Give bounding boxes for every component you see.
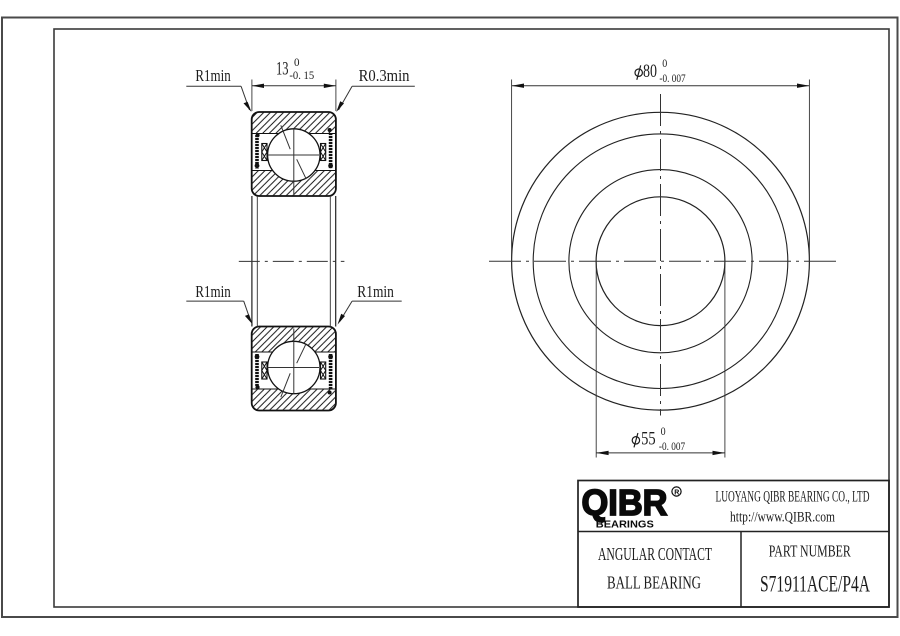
svg-text:R1min: R1min (357, 282, 394, 301)
svg-text:13: 13 (276, 59, 289, 80)
svg-text:R1min: R1min (195, 66, 231, 85)
svg-text:QIBR: QIBR (582, 482, 668, 523)
svg-text:http://www.QIBR.com: http://www.QIBR.com (730, 510, 836, 526)
svg-text:-0. 007: -0. 007 (659, 441, 685, 453)
svg-text:BALL BEARING: BALL BEARING (607, 573, 701, 593)
svg-text:0: 0 (662, 58, 667, 70)
svg-text:55: 55 (641, 428, 656, 449)
svg-text:LUOYANG QIBR BEARING CO., LTD: LUOYANG QIBR BEARING CO., LTD (716, 489, 870, 506)
svg-text:BEARINGS: BEARINGS (596, 519, 654, 531)
svg-text:-0. 007: -0. 007 (659, 73, 685, 85)
svg-text:0: 0 (661, 426, 666, 438)
svg-text:-0. 15: -0. 15 (289, 68, 314, 82)
svg-text:ANGULAR CONTACT: ANGULAR CONTACT (598, 544, 712, 564)
svg-text:R1min: R1min (195, 282, 231, 301)
svg-text:R: R (674, 489, 679, 496)
svg-text:80: 80 (643, 61, 657, 82)
svg-text:S71911ACE/P4A: S71911ACE/P4A (760, 572, 870, 597)
svg-text:PART NUMBER: PART NUMBER (769, 542, 851, 561)
svg-text:R0.3min: R0.3min (359, 66, 410, 85)
